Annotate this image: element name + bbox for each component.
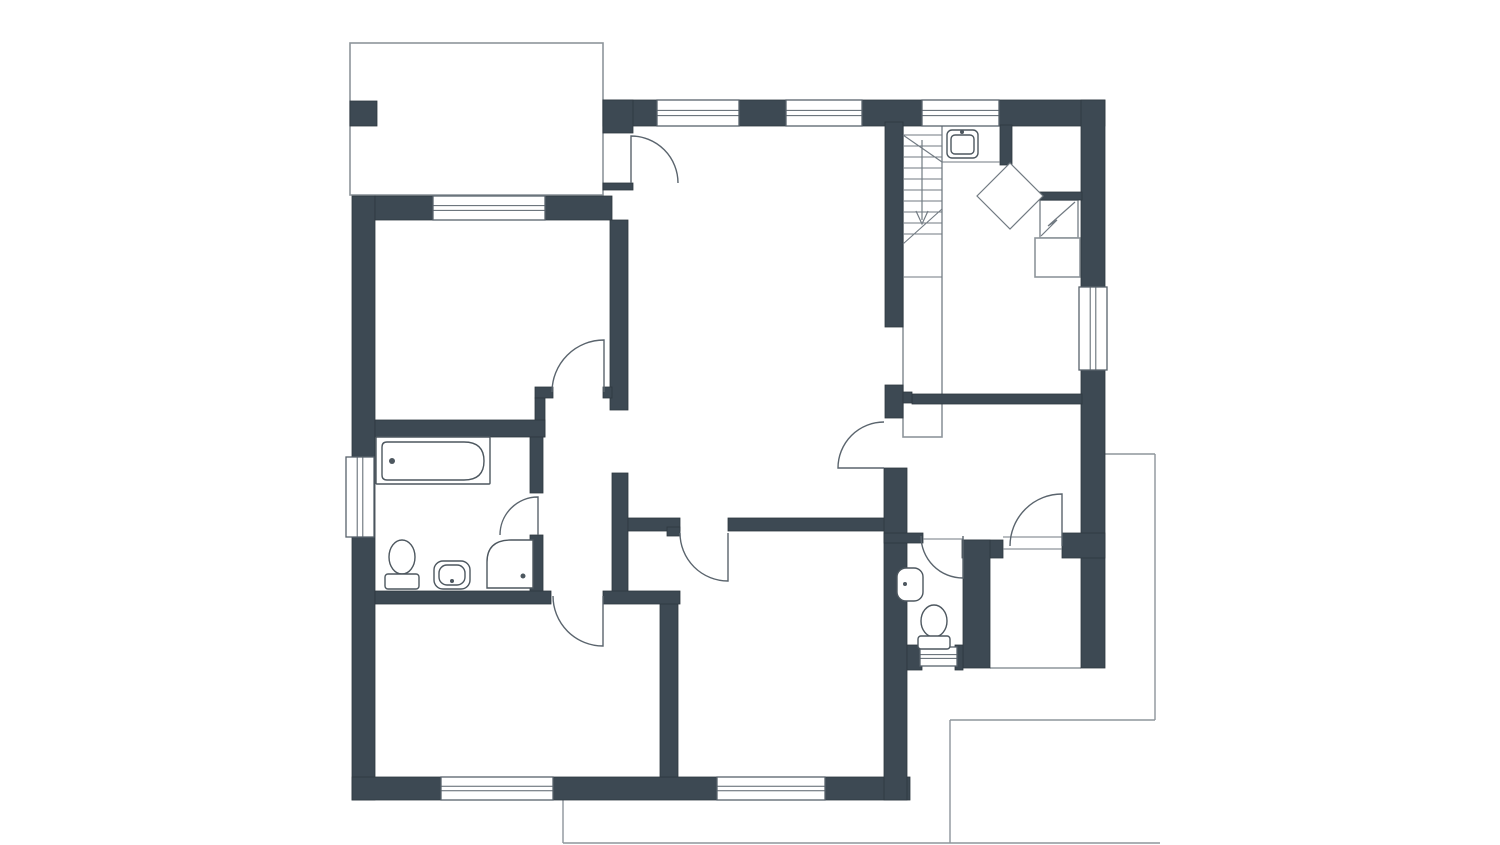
bath-sink-drain [450, 579, 454, 583]
bath-toilet-bowl [389, 540, 415, 574]
rooms-divider-wall [660, 593, 678, 777]
kitchen-bottom-wall-b [1062, 533, 1105, 558]
bath-shower-tray [487, 540, 533, 588]
bottom-wall-b [553, 777, 717, 800]
hall-wall-b [728, 518, 885, 531]
entry-wall [603, 100, 633, 133]
wc-top-wall [884, 533, 923, 543]
top-wall-b [739, 100, 786, 126]
topright-partition [1000, 125, 1012, 165]
window-top-2 [786, 100, 862, 126]
porch-outline [350, 43, 603, 195]
wc-toilet-bowl [921, 605, 947, 637]
hall-door-jamb [667, 527, 680, 536]
bathtub-inner [382, 442, 484, 480]
kitchen-top-jamb [903, 392, 912, 403]
storage-door [1010, 494, 1062, 546]
right-wall-lower [1081, 370, 1105, 668]
bedroom-door-stub [535, 387, 553, 398]
vestibule-right-wall [612, 473, 628, 597]
bathroom-door [500, 497, 538, 535]
right-wall-upper [1081, 100, 1105, 287]
bath-shower-drain [521, 574, 526, 579]
bathroom-top-wall [375, 420, 545, 437]
wc-sink-drain [903, 582, 907, 586]
window-top-1 [657, 100, 739, 126]
room-bl-door [553, 596, 603, 646]
lower-wall-a [375, 591, 551, 604]
bedroom-top-wall-a [375, 196, 433, 220]
bathtub-faucet [389, 458, 395, 464]
floor-plan-svg [0, 0, 1500, 845]
floor-plan [0, 0, 1500, 845]
shower-diamond [977, 163, 1043, 229]
window-wc [920, 647, 957, 666]
window-right [1079, 287, 1107, 370]
bottom-wall-a [352, 777, 441, 800]
room-bm-door [680, 533, 728, 581]
wc-right-wall [963, 540, 990, 668]
wc-toilet-tank [918, 636, 950, 649]
bedroom-door [552, 340, 604, 392]
right-spine-wall [884, 468, 907, 800]
window-bathroom [346, 457, 374, 537]
stair-wall-stub [885, 385, 903, 418]
bath-toilet-tank [385, 574, 419, 589]
stair-wall [885, 122, 903, 327]
wc-door [921, 536, 963, 578]
stair-sink-faucet [960, 130, 964, 134]
kitchen-top-wall [912, 394, 1082, 404]
chimney-base [1035, 238, 1080, 277]
window-bedroom [433, 196, 545, 220]
stair-sink-basin [951, 135, 974, 154]
kitchen-door [838, 422, 884, 468]
window-bottom-2 [717, 777, 825, 800]
chimney-box [1040, 200, 1078, 238]
bedroom-right-wall [610, 220, 628, 410]
entry-jamb [603, 183, 633, 190]
window-bottom-1 [441, 777, 553, 800]
wc-sink [897, 568, 923, 601]
bathroom-right-wall-a [530, 437, 543, 493]
entry-door [631, 136, 678, 183]
lower-wall-b [603, 591, 680, 604]
window-top-3 [922, 100, 999, 126]
porch-pillar [350, 101, 377, 126]
bedroom-top-wall-b [545, 196, 612, 220]
